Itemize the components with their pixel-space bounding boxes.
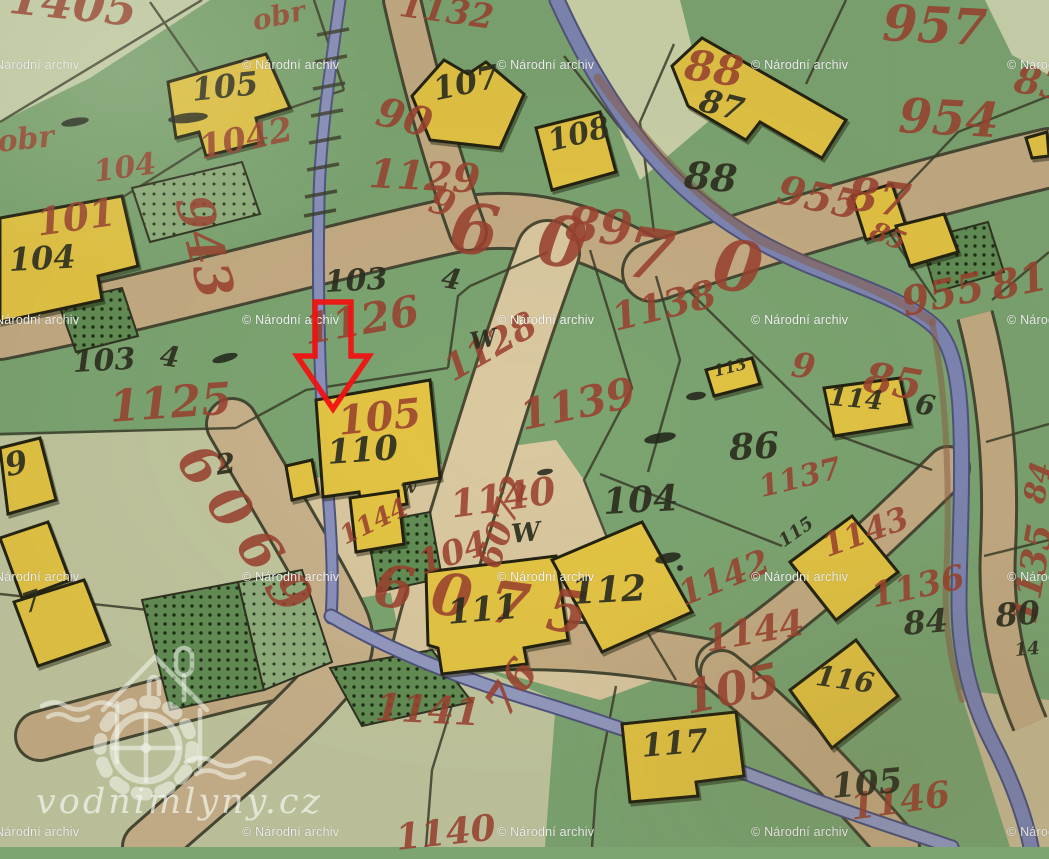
building-114: [824, 378, 910, 436]
cadastral-map-drawing: [0, 0, 1049, 847]
building-small-ne3: [1026, 132, 1049, 158]
map-viewer-screenshot: { "watermark": { "text": "© Národní arch…: [0, 0, 1049, 847]
building-110-annex: [350, 491, 404, 552]
building-110-shed: [286, 460, 318, 500]
map-canvas[interactable]: 1405obr113295788954obr104210490112998995…: [0, 0, 1049, 847]
